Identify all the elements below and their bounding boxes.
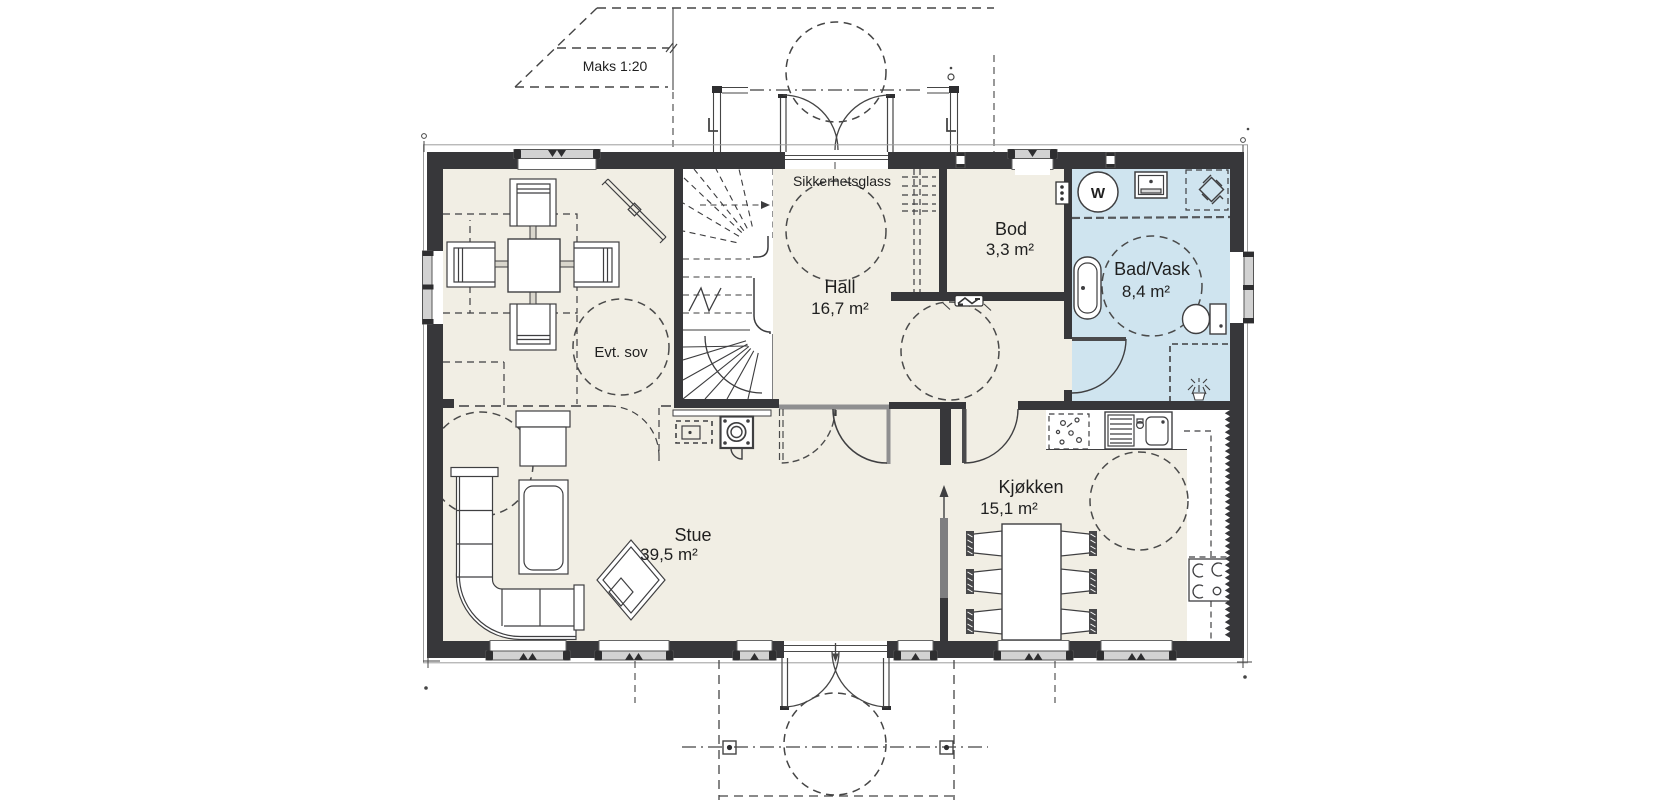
svg-text:Bad/Vask: Bad/Vask [1114,259,1191,279]
svg-text:Kjøkken: Kjøkken [998,477,1063,497]
svg-text:15,1 m²: 15,1 m² [980,499,1038,518]
svg-text:16,7 m²: 16,7 m² [811,299,869,318]
svg-text:3,3 m²: 3,3 m² [986,240,1035,259]
svg-text:8,4 m²: 8,4 m² [1122,282,1171,301]
svg-text:Maks 1:20: Maks 1:20 [583,58,648,74]
svg-text:Evt. sov: Evt. sov [594,344,648,361]
svg-text:Bod: Bod [995,219,1027,239]
svg-text:39,5 m²: 39,5 m² [640,545,698,564]
svg-text:W: W [1091,185,1106,202]
svg-text:Sikkerhetsglass: Sikkerhetsglass [793,173,891,189]
svg-text:Stue: Stue [674,525,711,545]
svg-text:Hall: Hall [824,277,855,297]
